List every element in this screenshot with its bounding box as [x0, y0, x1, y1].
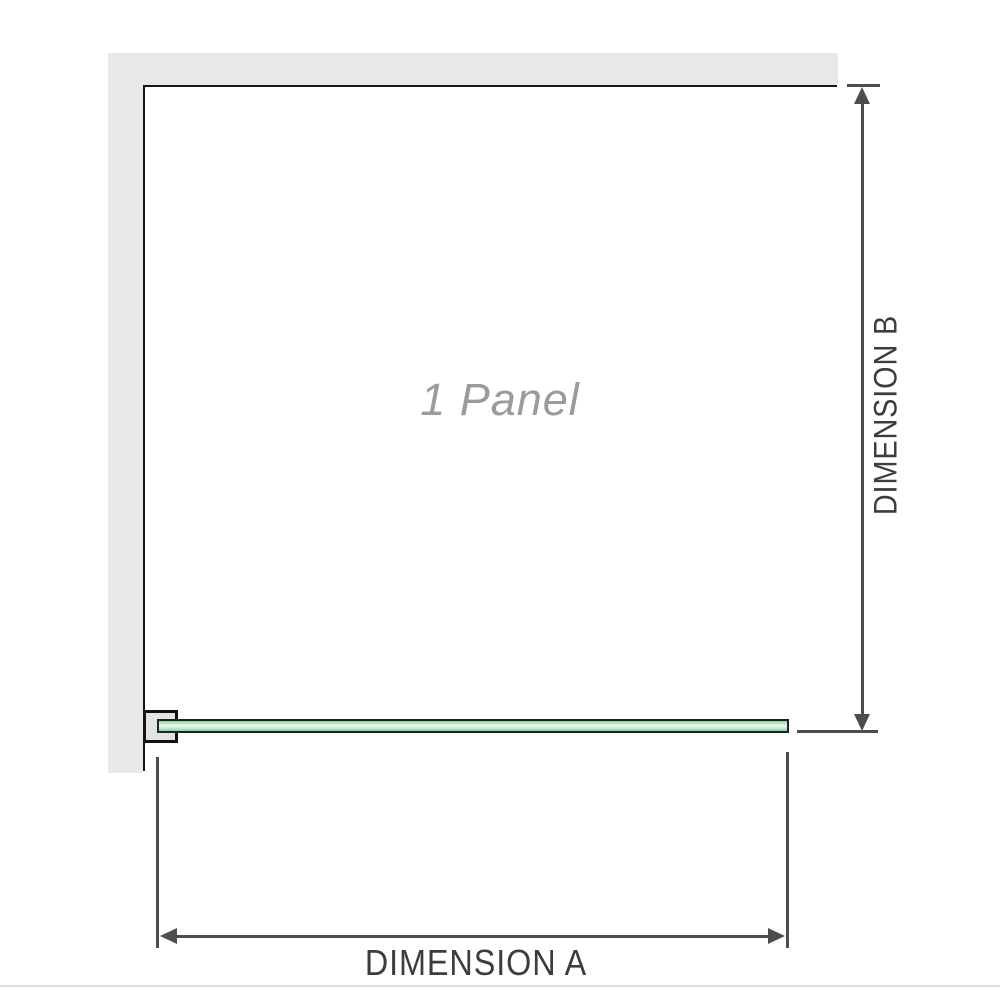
dimension-a-line: [168, 935, 780, 938]
diagram-canvas: 1 Panel DIMENSION B DIMENSION A: [0, 0, 1000, 1000]
dimension-b-line: [861, 98, 864, 718]
wall-top-strip: [108, 53, 838, 85]
wall-left-strip: [108, 53, 143, 773]
glass-panel-bar: [157, 719, 789, 733]
dimension-a-left-extension: [156, 757, 159, 948]
arrow-down-icon: [854, 714, 870, 731]
bottom-divider-line: [0, 985, 1000, 987]
arrow-up-icon: [854, 87, 870, 104]
dimension-a-label: DIMENSION A: [365, 942, 587, 984]
arrow-right-icon: [768, 928, 785, 944]
panel-title: 1 Panel: [420, 374, 580, 426]
dimension-b-label: DIMENSION B: [868, 315, 905, 515]
dimension-a-right-extension: [786, 752, 789, 948]
panel-outline: [143, 85, 837, 771]
arrow-left-icon: [160, 928, 177, 944]
